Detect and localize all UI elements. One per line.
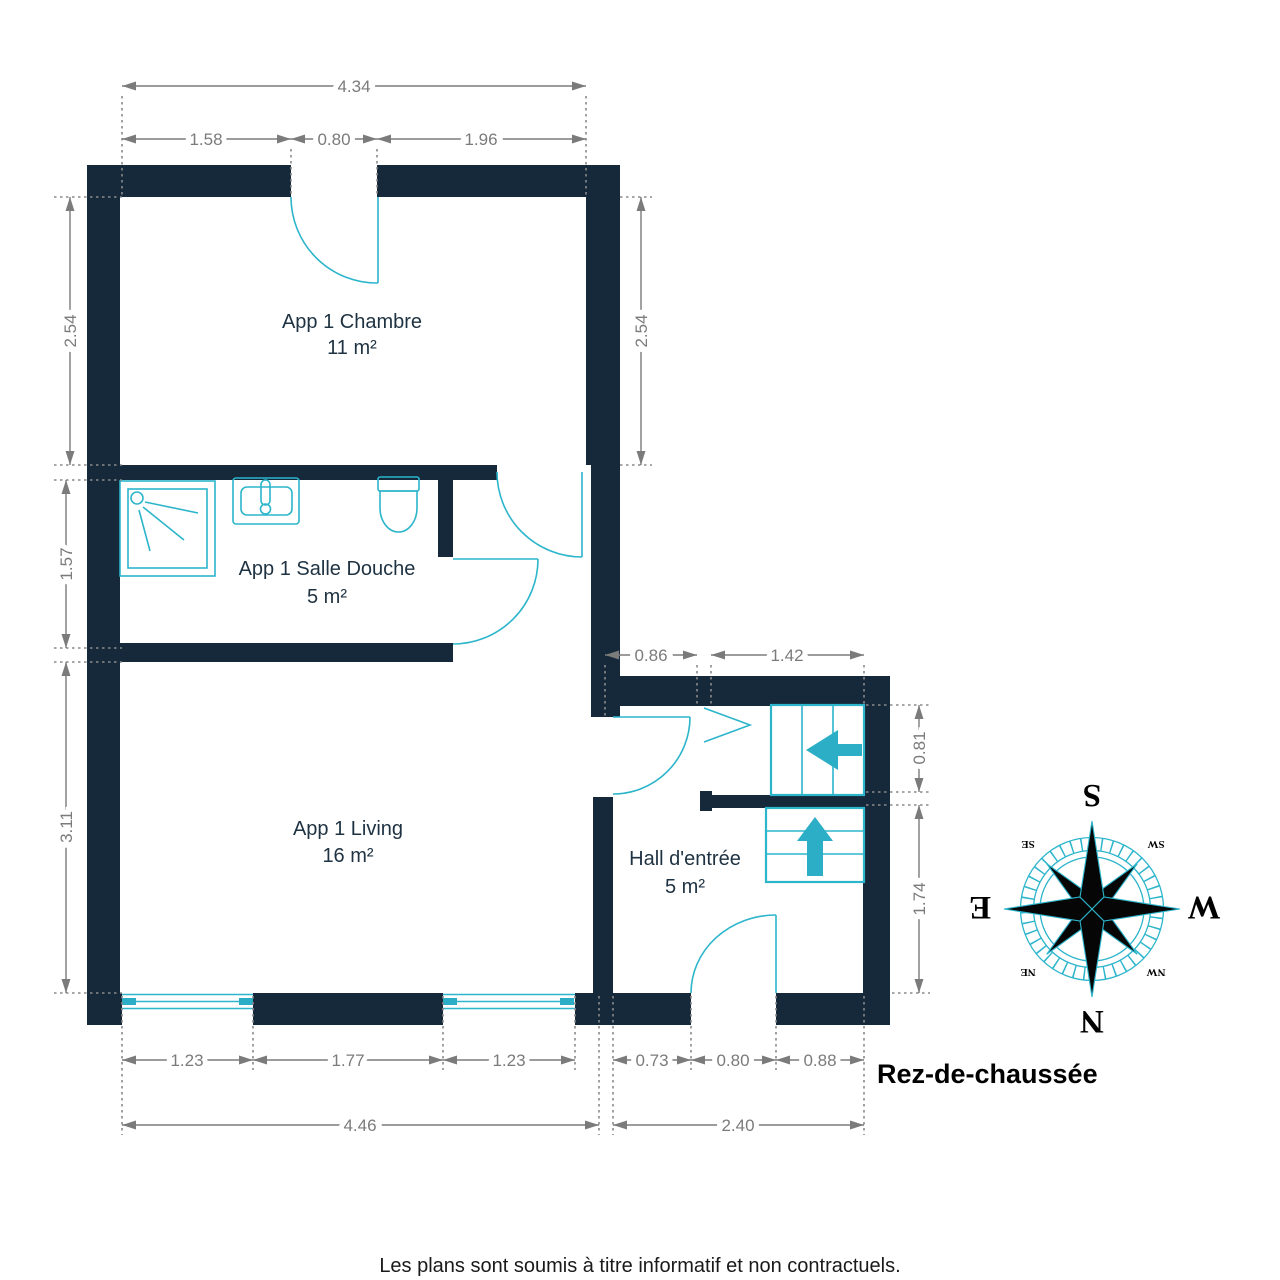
dimension-extension-lines [54,96,930,1135]
wall-bottom-2 [253,993,443,1025]
compass-se-label: SE [1021,838,1034,850]
dim-bottom-win2: 1.23 [492,1051,525,1070]
compass-south-label: S [1083,777,1101,813]
compass-sw-label: SW [1147,838,1164,850]
dim-top-door: 0.80 [317,130,350,149]
wall-stair-mid-cap [700,791,712,811]
wall-bottom-4 [776,993,890,1025]
room-hall-name: Hall d'entrée [629,848,741,870]
room-hall-area: 5 m² [665,876,705,898]
wall-sdb-right [438,480,453,557]
dim-hall-bdoor: 0.80 [716,1051,749,1070]
dim-top-total: 4.34 [337,77,370,96]
room-living-name: App 1 Living [293,818,403,840]
wall-hall-top [591,676,890,706]
dim-living-left: 3.11 [57,811,76,843]
floor-plan-svg: 4.34 1.58 0.80 1.96 2.54 2.54 1.57 3.11 … [0,0,1280,1280]
dim-top-seg2: 1.96 [464,130,497,149]
dim-hall-top-seg1: 0.86 [634,646,667,665]
dim-top-seg1: 1.58 [189,130,222,149]
compass-north-label: N [1080,1003,1104,1039]
dim-bottom-win1: 1.23 [170,1051,203,1070]
room-labels: App 1 Chambre 11 m² App 1 Salle Douche 5… [239,311,741,898]
dim-bottom-mid: 1.77 [331,1051,364,1070]
toilet-icon [378,477,419,532]
stairs [766,705,864,882]
door-living-hall-icon [613,717,690,794]
wall-left [87,165,120,1025]
dim-hall-top-seg2: 1.42 [770,646,803,665]
compass-ne-label: NE [1020,966,1035,978]
wall-top-right [377,165,620,197]
disclaimer-text: Les plans sont soumis à titre informatif… [379,1255,900,1277]
walls [87,165,890,1025]
wall-chambre-right [586,165,620,465]
room-living-area: 16 m² [322,845,373,867]
dim-living-total: 4.46 [343,1116,376,1135]
compass-rose-icon: N E S W NE SE SW NW [969,777,1221,1039]
door-chambre-icon [291,197,378,283]
room-chambre-name: App 1 Chambre [282,311,422,333]
dimension-lines: 4.34 1.58 0.80 1.96 2.54 2.54 1.57 3.11 … [57,77,929,1135]
floor-title: Rez-de-chaussée [877,1059,1098,1089]
shower-icon [120,481,215,576]
room-sdb-area: 5 m² [307,586,347,608]
window-living-right-icon [443,995,575,1009]
wall-right [863,676,890,1025]
window-living-left-icon [122,995,253,1009]
stairs-upper-flight [771,705,864,795]
dim-stair-upper: 0.81 [910,731,929,764]
door-salle-douche-icon [453,559,538,644]
wall-bottom-3 [575,993,691,1025]
stairs-lower-flight [766,808,864,882]
sink-icon [233,478,299,524]
door-chambre-nook-icon [497,472,582,557]
door-stair-chevron-icon [704,708,750,742]
compass-east-label: E [969,889,991,925]
room-chambre-area: 11 m² [327,337,377,359]
dim-chambre-right: 2.54 [632,314,651,347]
dim-chambre-left: 2.54 [61,314,80,347]
dim-hall-b2: 0.88 [803,1051,836,1070]
compass-west-label: W [1188,889,1221,925]
compass-nw-label: NW [1147,966,1166,978]
floor-plan-page: 4.34 1.58 0.80 1.96 2.54 2.54 1.57 3.11 … [0,0,1280,1280]
dim-hall-total: 2.40 [721,1116,754,1135]
wall-living-hall-divider [593,797,613,993]
room-sdb-name: App 1 Salle Douche [239,558,416,580]
wall-sdb-bottom [87,643,453,662]
dim-hall-right: 1.74 [910,882,929,915]
dim-hall-b1: 0.73 [635,1051,668,1070]
wall-stair-mid [700,795,890,808]
dim-sdb-left: 1.57 [57,547,76,580]
door-entrance-icon [691,915,776,993]
wall-bottom-1 [87,993,122,1025]
